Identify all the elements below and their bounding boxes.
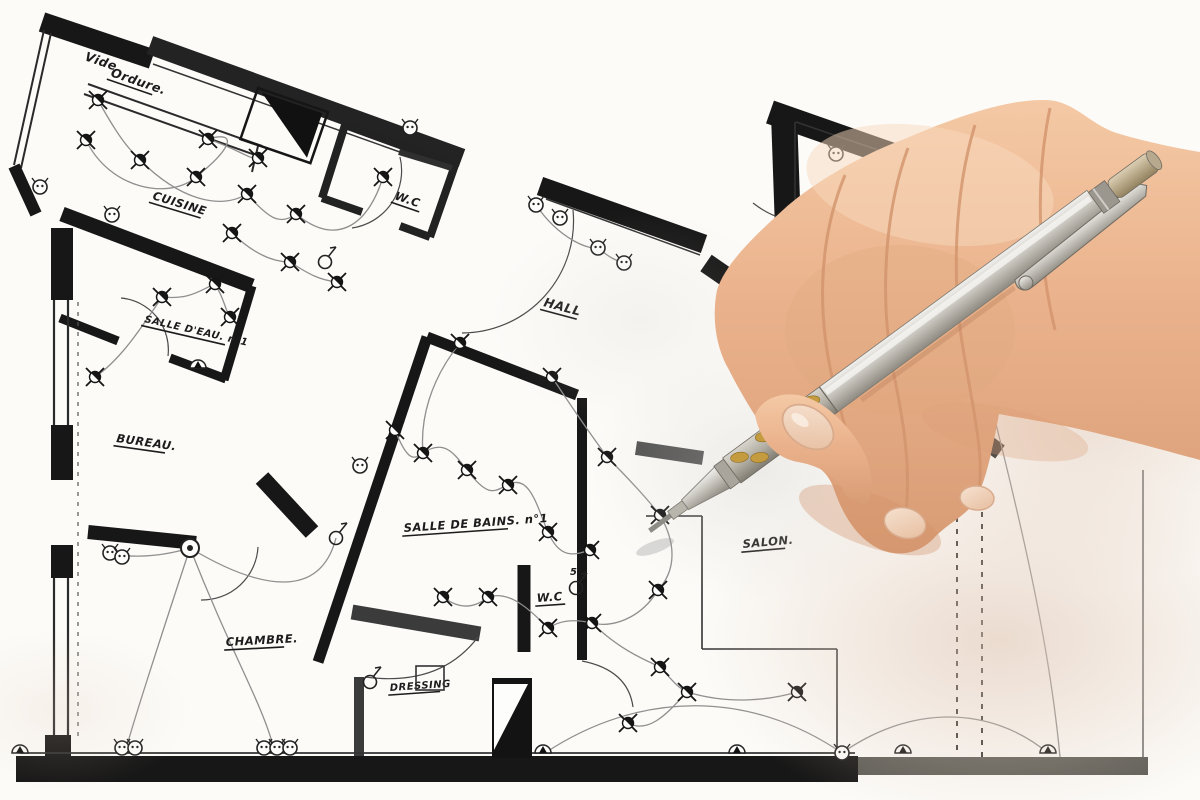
socket-symbol bbox=[104, 206, 120, 222]
duct-block bbox=[492, 678, 532, 758]
label-text: W.C bbox=[536, 589, 563, 605]
socket-symbol bbox=[402, 119, 418, 135]
socket-symbol bbox=[528, 196, 544, 212]
circuit-number-annotation: 5 bbox=[570, 567, 577, 578]
socket-symbol bbox=[282, 739, 298, 755]
ceiling-light-layer bbox=[181, 539, 199, 557]
label-text: 5 bbox=[570, 567, 577, 578]
ceiling-light-symbol bbox=[181, 539, 199, 557]
floor-plan-photo: Vide Ordure. CUISINE W.C HALL SALLE D'EA… bbox=[0, 0, 1200, 800]
socket-symbol bbox=[32, 178, 48, 194]
socket-symbol bbox=[552, 209, 568, 225]
room-label-wc-mid: W.C bbox=[534, 589, 565, 606]
photo-floorplan-scene: Vide Ordure. CUISINE W.C HALL SALLE D'EA… bbox=[0, 0, 1200, 800]
socket-symbol bbox=[352, 457, 368, 473]
socket-symbol bbox=[114, 548, 130, 564]
